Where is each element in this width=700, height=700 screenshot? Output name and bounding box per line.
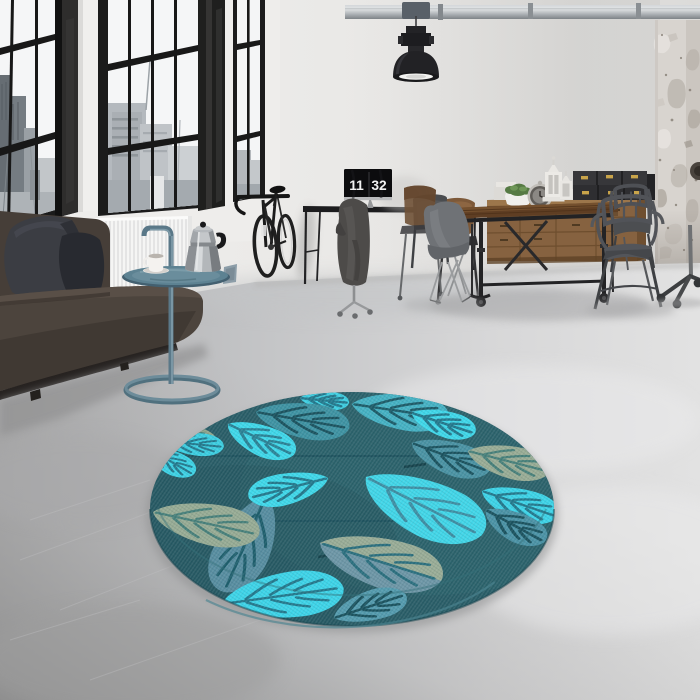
svg-text:32: 32	[371, 178, 387, 193]
svg-text:11: 11	[349, 178, 364, 193]
